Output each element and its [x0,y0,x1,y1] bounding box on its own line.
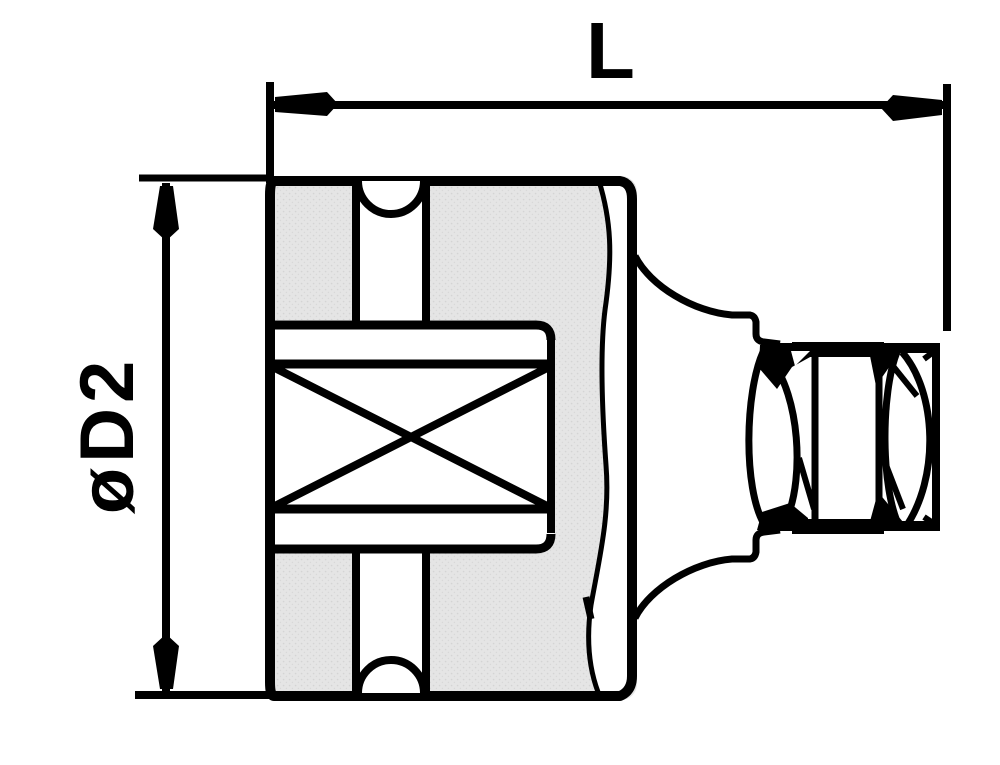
svg-text:øD2: øD2 [65,356,150,515]
svg-text:L: L [586,6,635,95]
